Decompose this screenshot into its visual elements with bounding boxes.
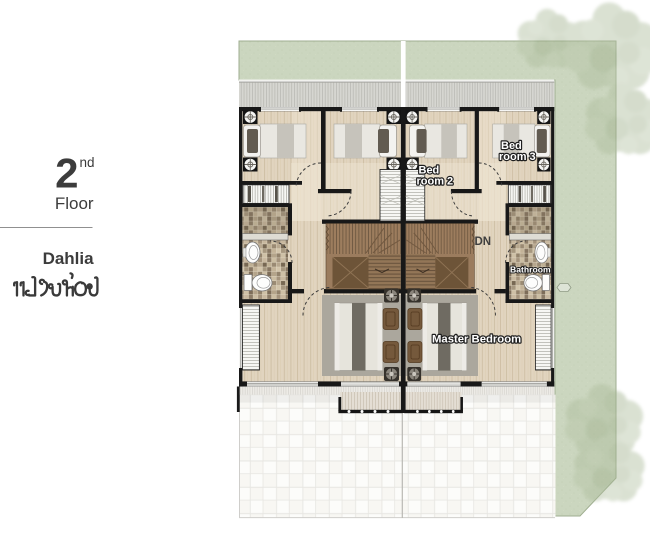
svg-text:Dahlia: Dahlia — [43, 249, 95, 268]
svg-text:room 3: room 3 — [499, 151, 536, 163]
svg-text:Bathroom: Bathroom — [510, 265, 551, 275]
svg-text:Floor: Floor — [55, 194, 94, 213]
svg-text:room 2: room 2 — [417, 176, 454, 188]
svg-text:DN: DN — [475, 236, 492, 248]
svg-text:2: 2 — [55, 150, 78, 197]
svg-text:nd: nd — [80, 155, 95, 170]
svg-text:Master Bedroom: Master Bedroom — [432, 334, 521, 346]
